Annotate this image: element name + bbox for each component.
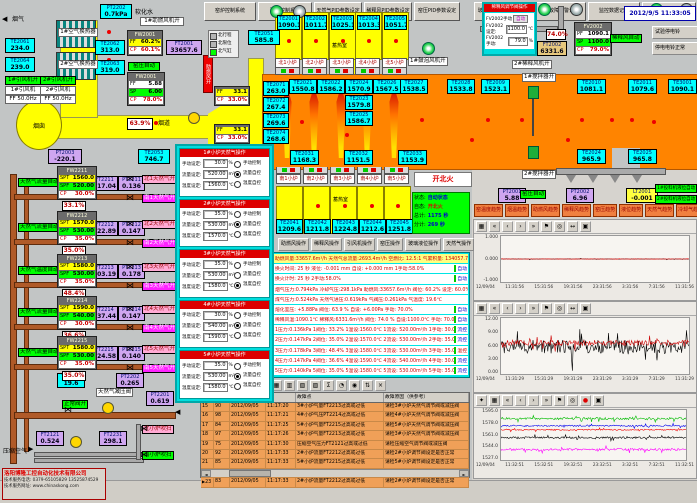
x-tick: 11:31:56 — [675, 284, 694, 289]
alarm-row[interactable]: 1975 2012/09/0511:17:30 压缩空气压力FT2121过高或过… — [201, 441, 469, 450]
x-tick: 12/09/04 — [476, 462, 495, 467]
instrument-readout: TE20421211.8 — [304, 219, 331, 234]
burner-status-leds — [276, 167, 301, 174]
operation-button[interactable]: 玻璃液位操作 — [405, 238, 441, 251]
scada-furnace-screen: 烟囱 ◀ 烟气 ← 软化水 烟道 1#空气换热器 2#空气换热器 1#引风机开 … — [0, 0, 697, 503]
unit-label: ℃ — [528, 27, 533, 32]
panel-row: FF60.2% — [129, 39, 161, 46]
panel-row: SP1100.0 — [576, 39, 610, 46]
flag-icon[interactable]: ⚑ — [541, 303, 552, 314]
instrument-readout: TE20231579.8 — [345, 95, 373, 110]
chart-toolbar: ▦«‹›»⚑◎↔▣ — [474, 302, 696, 316]
heat-exchanger-1-label: 1#空气换热器 — [58, 28, 98, 37]
trend-panel-temperature: ✦▦«‹›»⚑◎●▣ 1595.01578.01561.01544.01527.… — [473, 393, 697, 479]
indicator-dot-icon — [566, 138, 570, 142]
burner-status-leds — [329, 68, 354, 75]
radio-icon — [234, 312, 241, 319]
company-info-box: 洛阳博隆工控自动化技术有限公司 技术服务电话: 0379-65105829 13… — [2, 468, 106, 500]
valve-percent: 33.1% — [62, 201, 86, 211]
monitor-row: 助燃风量:33657.6m³/h 天然气总流量:2693.4m³/h 空燃比: … — [274, 254, 468, 263]
stirrer-1-on-label: 1#搅拌器开 — [522, 73, 556, 82]
radio-icon — [234, 272, 241, 279]
next-icon[interactable]: › — [528, 395, 539, 406]
south-gas-valve-label: 南2天然气开 — [142, 239, 177, 248]
instrument-readout: PT2003-220.1 — [48, 149, 82, 164]
flow-set-label: 流量设定: — [182, 172, 202, 178]
instrument-readout: TE20041013.3 — [357, 15, 380, 30]
radio-temp-auto[interactable]: 温度自控 — [234, 230, 268, 240]
panel-row: FF33.1 — [216, 89, 248, 96]
furnace-gas-panel: 5#小炉天然气操作 手动设定:35.0% 流量设定:530.00m³/h 温度设… — [179, 350, 270, 399]
datetime-display: 2012/9/5 11:33:05 — [624, 6, 696, 21]
alarm-row[interactable]: 2383 2012/09/0511:17:33 2#小炉流量FT2212过高或过… — [201, 478, 469, 487]
fv2002-manual-button[interactable]: FV2002手动 — [486, 16, 512, 22]
x-tick: 15:31:29 — [534, 376, 553, 381]
grid-icon[interactable]: ▦ — [489, 395, 500, 406]
aux-fan-panel-2: FF33.1CP33.0% — [214, 124, 250, 144]
trend-panel-pressure: ▦«‹›»⚑◎↔▣ 12.009.006.003.000.00 12/09/04… — [473, 301, 697, 393]
north-furnace-tab[interactable]: 北2小炉 — [302, 58, 327, 75]
furnace-gas-panel: 1#小炉天然气操作 手动设定:30.0% 流量设定:520.00m³/h 温度设… — [179, 148, 270, 197]
valve-icon: ⋈ — [126, 282, 134, 290]
x-tick: 3:31:29 — [622, 376, 638, 381]
unit-label: % — [229, 313, 233, 318]
manual-set-input[interactable]: 30.0 — [203, 311, 228, 320]
company-name: 洛阳博隆工控自动化技术有限公司 — [4, 470, 104, 478]
last-icon[interactable]: » — [528, 303, 539, 314]
monitor-row: 1压力:0.136kPa 1阀位: 33.2% 1温设:1560.0℃ 1流设:… — [274, 325, 468, 334]
south-furnace-tab[interactable]: 南4小炉 — [357, 167, 382, 184]
x-tick: 12/09/04 — [476, 284, 495, 289]
grid-icon[interactable]: ▦ — [476, 303, 487, 314]
radio-flow-auto[interactable]: 流量自控 — [234, 270, 268, 280]
temp-set-input[interactable]: 1570.0 — [203, 232, 228, 241]
instrument-readout: TE20051051.7 — [384, 15, 407, 30]
instrument-readout: TE20331153.9 — [398, 150, 427, 165]
chart-toolbar: ✦▦«‹›»⚑◎●▣ — [474, 394, 696, 408]
radio-manual-control[interactable]: 手动控制 — [234, 361, 268, 371]
instrument-readout: TE20441212.6 — [359, 219, 386, 234]
trend-button[interactable]: 液位趋势 — [619, 204, 643, 217]
gas-control-loop: 天然气流量自动 FW2211 SPT1560.0 SPF520.00 CP30.… — [18, 168, 172, 210]
led-green-icon — [390, 168, 395, 172]
first-icon[interactable]: « — [502, 395, 513, 406]
feeder-funnel-icon — [610, 175, 620, 183]
radio-temp-auto[interactable]: 温度自控 — [234, 381, 268, 391]
save-icon[interactable]: ▣ — [580, 303, 591, 314]
led-red-icon — [371, 168, 376, 172]
instrument-readout: TE2024965.9 — [577, 149, 606, 164]
instrument-readout: FT2231298.1 — [99, 431, 127, 446]
panel-title: FV2002 — [576, 24, 610, 30]
radio-icon — [234, 221, 241, 228]
radio-flow-auto[interactable]: 流量自控 — [234, 321, 268, 331]
mode-radio-group: 手动控制 流量自控 温度自控 — [234, 311, 268, 341]
dilution-auto-label: 稀释风自动 — [610, 34, 642, 43]
burner-status-leds — [357, 167, 382, 174]
instrument-readout: TE20281533.8 — [447, 79, 475, 94]
manual-set-label: 手动设定: — [182, 312, 202, 318]
stirrer-motor-icon — [528, 146, 539, 159]
flag-icon[interactable]: ⚑ — [541, 221, 552, 232]
flow-set-input[interactable]: 530.00 — [203, 271, 228, 280]
instrument-readout: TE2025965.8 — [628, 149, 657, 164]
changeover-status-panel: 状态:自动状态自态:开北火总计:1175 秒分计:269 秒 — [412, 192, 470, 234]
sum-icon[interactable]: Σ — [323, 380, 334, 391]
feeder-manifold-pipe — [556, 168, 666, 175]
operation-button[interactable]: 天然气操作 — [443, 238, 474, 251]
south-gas-valve-label: 南3天然气开 — [142, 282, 177, 291]
first-icon[interactable]: « — [489, 303, 500, 314]
temp-set-label: 温度设定: — [182, 334, 202, 340]
burner-status-leds — [275, 68, 300, 75]
last-icon[interactable]: » — [528, 221, 539, 232]
sort-icon[interactable]: ⇅ — [362, 380, 373, 391]
level-trend-plot[interactable] — [500, 235, 690, 283]
trend-button[interactable]: 冷却气趋势 — [676, 204, 697, 217]
instrument-readout: TE20251586.7 — [345, 111, 373, 126]
alarm-row[interactable]: 1897 2012/09/0511:17:26 3#小炉气量FT2213过高或过… — [201, 431, 469, 440]
fan-icon — [570, 3, 583, 16]
unit-label: ℃ — [229, 234, 234, 239]
radio-icon — [234, 211, 241, 218]
zoom-icon[interactable]: ◎ — [554, 221, 565, 232]
panel-title: 2#小炉天然气操作 — [180, 200, 269, 208]
north-gas-valve-label: 北4天然气开 — [142, 305, 177, 314]
instrument-readout: TE2072267.4 — [263, 97, 289, 112]
fv2002-auto-button[interactable]: 自动 — [513, 15, 528, 23]
mode-badge: 自动 — [454, 265, 468, 272]
indicator-dot-icon — [107, 30, 111, 34]
led-green-icon — [335, 69, 340, 73]
legend-state-icon — [210, 41, 217, 48]
scrollbar-thumb[interactable] — [229, 470, 271, 477]
gas-pid-panel: FW2211 SPT1560.0 SPF520.00 CP30.0% — [57, 166, 97, 200]
feeder-1-level-auto-label: 1#投料机液位自动 — [655, 184, 697, 193]
instrument-readout: TE2074268.6 — [263, 129, 289, 144]
burner-status-leds — [303, 167, 328, 174]
x-tick: 11:32:51 — [505, 462, 524, 467]
alarm-row[interactable]: 2185 2012/09/0511:17:33 5#小炉流量FT2215过高或过… — [201, 459, 469, 468]
panel-row: CP33.0% — [216, 97, 248, 104]
operation-button[interactable]: 助燃风操作 — [278, 238, 309, 251]
radio-icon — [234, 322, 241, 329]
panel-row: PF1090.1 — [576, 31, 610, 38]
dilution-valve-popup: 稀释风调节阀操作 FV2002手动自动 FV2002设定:1100.0℃ FV2… — [482, 2, 537, 56]
unit-label: % — [529, 39, 533, 44]
radio-icon — [234, 161, 241, 168]
radio-icon — [234, 171, 241, 178]
prev-icon[interactable]: ‹ — [515, 395, 526, 406]
flow-set-input[interactable]: 530.00 — [203, 372, 228, 381]
radio-temp-auto[interactable]: 温度自控 — [234, 331, 268, 341]
set-label: FV2002设定: — [486, 24, 505, 35]
instrument-readout: TE20311168.3 — [290, 150, 319, 165]
panel-title: 3#小炉天然气操作 — [180, 250, 269, 258]
grid3-icon[interactable]: ▧ — [297, 380, 308, 391]
burner-status-leds — [382, 68, 407, 75]
radio-manual-control[interactable]: 手动控制 — [234, 210, 268, 220]
kiln-pressure-auto-label-2: 窑压自动 — [520, 190, 546, 199]
panel-row: CP60.1% — [129, 47, 161, 54]
popup-title: 稀释风调节阀操作 — [484, 4, 535, 12]
south-furnace-tab[interactable]: 南2小炉 — [303, 167, 328, 184]
prev-icon[interactable]: ‹ — [502, 221, 513, 232]
grid-icon[interactable]: ▦ — [476, 221, 487, 232]
radio-temp-auto[interactable]: 温度自控 — [234, 179, 268, 189]
x-tick: 23:31:56 — [593, 284, 612, 289]
alarm-row[interactable]: 2092 2012/09/0511:17:33 2#小炉流量FT2212过高或过… — [201, 450, 469, 459]
burner-status-leds — [302, 68, 327, 75]
clock-icon[interactable]: ◔ — [336, 380, 347, 391]
alarm-row[interactable]: 1698 2012/09/0511:17:21 4#小炉气压PT2214过高或过… — [201, 412, 469, 421]
alarm-row[interactable]: 1784 2012/09/0511:17:25 5#小炉气量FT2215过高或过… — [201, 422, 469, 431]
operation-button[interactable]: 引风机操作 — [344, 238, 375, 251]
status-row: 状态:自动状态 — [414, 194, 468, 203]
manual-set-label: 手动设定: — [182, 211, 202, 217]
north-gas-valve-label: 北2天然气开 — [142, 220, 177, 229]
x-tick: 3:31:56 — [622, 284, 638, 289]
pressure-trend-plot[interactable] — [500, 317, 690, 375]
south-furnace-tab[interactable]: 南1小炉 — [276, 167, 301, 184]
unit-label: ℃ — [229, 335, 234, 340]
mode-badge: 流控 — [454, 357, 468, 364]
panel-title: 1#小炉天然气操作 — [180, 149, 269, 157]
radio-manual-control[interactable]: 手动控制 — [234, 260, 268, 270]
booster-air-duct-label: 助燃风开 — [203, 55, 213, 93]
next-icon[interactable]: › — [515, 303, 526, 314]
col-fault-reason: 故障原因（供参考） — [384, 393, 469, 402]
prev-icon[interactable]: ‹ — [502, 303, 513, 314]
alarm-table: 故障点 故障原因（供参考） 1590 2012/09/0511:17:20 3#… — [200, 392, 470, 478]
gas-control-loop: 天然气流量自动 FW2212 SPT1570.0 SPF530.00 CP35.… — [18, 213, 172, 255]
valve-icon: ⋈ — [126, 239, 134, 247]
instrument-readout: TE20271538.5 — [400, 79, 428, 94]
led-green-icon — [281, 69, 286, 73]
panel-title: FW2001 — [129, 74, 163, 80]
y-tick: 12.00 — [485, 317, 498, 322]
y-tick: 1527.0 — [482, 456, 498, 461]
north-gas-valve-label: 北5天然气开 — [142, 345, 177, 354]
trend-button[interactable]: 助燃风趋势 — [531, 204, 560, 217]
temp-set-input[interactable]: 1580.0 — [203, 282, 228, 291]
indicator-dot-icon — [610, 118, 614, 122]
soft-water-label: 软化水 — [135, 7, 153, 16]
trend-button[interactable]: 窑温度趋势 — [474, 204, 503, 217]
gas-auto-mode-label: 天然气流量自动 — [18, 348, 61, 357]
flow-set-input[interactable]: 520.00 — [203, 170, 228, 179]
south-furnace-tab[interactable]: 南3小炉 — [330, 167, 355, 184]
operation-button[interactable]: 稀释风操作 — [311, 238, 342, 251]
instrument-readout: TE20221586.2 — [317, 79, 345, 94]
manual-percent-input[interactable]: 79.0 — [508, 37, 528, 46]
manual-set-input[interactable]: 35.0 — [203, 210, 228, 219]
stirrer-motor-icon — [528, 86, 539, 99]
instrument-readout: TE2073269.6 — [263, 113, 289, 128]
instrument-readout: TE30011090.1 — [668, 79, 697, 94]
led-green-icon — [388, 69, 393, 73]
unit-label: % — [229, 363, 233, 368]
system-nav-button[interactable]: 窑炉控制系统 — [204, 2, 256, 21]
set-temp-input[interactable]: 1100.0 — [506, 25, 527, 34]
valve-icon: ⋈ — [64, 406, 72, 414]
flow-set-label: 流量设定: — [182, 374, 202, 380]
next-icon[interactable]: › — [515, 221, 526, 232]
span-icon[interactable]: ↔ — [567, 303, 578, 314]
radio-temp-auto[interactable]: 温度自控 — [234, 280, 268, 290]
y-tick: 1595.0 — [482, 409, 498, 414]
company-website[interactable]: 技术服务网址: www.chinaskong.com — [4, 484, 104, 490]
trend-button[interactable]: 稀释风趋势 — [562, 204, 591, 217]
pump-icon — [70, 436, 82, 448]
radio-flow-auto[interactable]: 流量自控 — [234, 220, 268, 230]
bell-status-button[interactable]: 停电电铃正常 — [652, 42, 697, 55]
instrument-readout: PT22010.619 — [146, 391, 174, 406]
manual-set-input[interactable]: 35.0 — [203, 260, 228, 269]
north-furnace-tab[interactable]: 北1小炉 — [275, 58, 300, 75]
south-furnace-tab[interactable]: 南5小炉 — [384, 167, 409, 184]
save-icon[interactable]: ▣ — [580, 221, 591, 232]
mode-badge: 自动 — [454, 316, 468, 323]
valve-icon: ⋈ — [126, 175, 134, 183]
process-monitor-panel: 助燃风量:33657.6m³/h 天然气总流量:2693.4m³/h 空燃比: … — [272, 252, 470, 378]
indicator-dot-icon — [420, 118, 424, 122]
indicator-dot-icon — [630, 118, 634, 122]
first-icon[interactable]: « — [489, 221, 500, 232]
gas-pid-panel: FW2215 SPT1580.0 SPF530.00 CP35.0% — [57, 336, 97, 370]
manual-set-input[interactable]: 35.0 — [203, 361, 228, 370]
x-tick: 23:32:51 — [593, 462, 612, 467]
close-icon[interactable]: × — [375, 380, 386, 391]
north-gas-valve-label: 北3天然气开 — [142, 263, 177, 272]
instrument-readout: TE20261567.5 — [373, 79, 401, 94]
x-tick: 19:31:29 — [564, 376, 583, 381]
flag-icon[interactable]: ⚑ — [554, 395, 565, 406]
booster-fan-1-on-label: 1#助燃风机开 — [140, 17, 184, 26]
mode-radio-group: 手动控制 流量自控 温度自控 — [234, 210, 268, 240]
x-tick: 11:31:29 — [675, 376, 694, 381]
system-nav-button[interactable]: 窑压PID参数设定 — [414, 2, 460, 21]
fire-north-button[interactable]: 开北火 — [414, 172, 472, 187]
north-gas-valve-label: 北1天然气开 — [142, 175, 177, 184]
radio-flow-auto[interactable]: 流量自控 — [234, 169, 268, 179]
zoom-icon[interactable]: ◎ — [554, 303, 565, 314]
led-green-icon — [363, 168, 368, 172]
radio-icon — [234, 231, 241, 238]
trend-button[interactable]: 窑压趋势 — [593, 204, 617, 217]
flow-set-label: 流量设定: — [182, 323, 202, 329]
gas-auto-mode-label: 天然气温度自动 — [18, 266, 61, 275]
gas-pid-panel: FW2214 SPT1590.0 SPF540.00 CP30.0% — [57, 296, 97, 330]
indicator-dot-icon — [394, 39, 398, 43]
temp-set-label: 温度设定: — [182, 183, 202, 189]
instrument-readout: TE2062313.0 — [95, 40, 125, 55]
trend-button[interactable]: 烟温趋势 — [505, 204, 529, 217]
instrument-readout: PT20026.96 — [566, 188, 594, 203]
bell-test-button[interactable]: 试验停电铃 — [652, 26, 697, 39]
valve-icon: ⋈ — [126, 324, 134, 332]
x-tick: 11:31:56 — [505, 284, 524, 289]
radio-icon — [234, 332, 241, 339]
monitor-row: 烟气压力:0.794kPa 冷却气压:298.1kPa 助燃风:33657.6m… — [274, 285, 468, 294]
gas-control-loop: 天然气温度自动 FW2213 SPT1580.0 SPF530.00 CP35.… — [18, 256, 172, 298]
temp-set-input[interactable]: 1580.0 — [203, 383, 228, 392]
gas-control-loop: 天然气流量自动 FW2215 SPT1580.0 SPF530.00 CP35.… — [18, 338, 172, 380]
gas-trunk-pipe — [10, 174, 17, 464]
manual-set-label: 手动设定: — [182, 161, 202, 167]
trend-panel-level: ▦«‹›»⚑◎↔▣ 1.0000.000-1.000 12/09/0411:31… — [473, 219, 697, 301]
valve-icon: ⋈ — [126, 220, 134, 228]
operation-button[interactable]: 窑压操作 — [377, 238, 403, 251]
chart-toolbar: ▦«‹›»⚑◎↔▣ — [474, 220, 696, 234]
x-tick: 23:31:29 — [593, 376, 612, 381]
dilution-valve-percent: 74.0% — [546, 29, 566, 40]
grid2-icon[interactable]: ▥ — [284, 380, 295, 391]
radio-manual-control[interactable]: 手动控制 — [234, 159, 268, 169]
save-icon[interactable]: ▣ — [593, 395, 604, 406]
flow-set-label: 流量设定: — [182, 222, 202, 228]
radio-manual-control[interactable]: 手动控制 — [234, 311, 268, 321]
north-furnace-tab[interactable]: 北3小炉 — [329, 58, 354, 75]
alarm-row[interactable]: 1590 2012/09/0511:17:20 3#小炉气量FT2213过高或过… — [201, 403, 469, 412]
y-tick: 6.00 — [488, 344, 498, 349]
key-icon[interactable]: ✦ — [476, 395, 487, 406]
span-icon[interactable]: ↔ — [567, 221, 578, 232]
trend-button[interactable]: 天然气趋势 — [645, 204, 674, 217]
temp-set-input[interactable]: 1560.0 — [203, 181, 228, 190]
lock-icon[interactable]: ◉ — [349, 380, 360, 391]
zoom-icon[interactable]: ◎ — [567, 395, 578, 406]
y-tick: 0.00 — [488, 370, 498, 375]
north-furnace-tab[interactable]: 北5小炉 — [382, 58, 407, 75]
x-tick: 7:31:29 — [649, 376, 665, 381]
manual-set-input[interactable]: 30.0 — [203, 159, 228, 168]
x-tick: 12/09/04 — [476, 376, 495, 381]
gas-pressure-valve-label: 天然气减压阀 — [96, 388, 133, 397]
flue-gas-arrow-icon: ◀ — [2, 16, 7, 23]
aux-fan-panel-1: FF33.1CP33.0% — [214, 86, 250, 106]
indicator-dot-icon — [370, 204, 374, 208]
led-red-icon — [398, 168, 403, 172]
y-tick: -1.000 — [483, 278, 498, 283]
temperature-trend-plot[interactable] — [500, 409, 687, 461]
temp-set-input[interactable]: 1590.0 — [203, 333, 228, 342]
instrument-readout: FT200133657.6 — [166, 40, 202, 55]
valve-icon: ⋈ — [140, 451, 148, 459]
manual-set-label: 手动设定: — [182, 262, 202, 268]
valve-icon: ⋈ — [126, 305, 134, 313]
monitor-row: 换火计时: 25 秒 2手动:58.0%自动 — [274, 274, 468, 283]
unit-label: ℃ — [229, 183, 234, 188]
indicator-dot-icon — [314, 39, 318, 43]
flue-damper-percent: 63.9% — [127, 118, 153, 130]
radio-flow-auto[interactable]: 流量自控 — [234, 371, 268, 381]
flow-set-input[interactable]: 540.00 — [203, 322, 228, 331]
north-furnace-tab[interactable]: 北4小炉 — [355, 58, 380, 75]
x-tick: 3:32:51 — [622, 462, 638, 467]
radio-icon — [234, 383, 241, 390]
flow-set-input[interactable]: 530.00 — [203, 221, 228, 230]
last-icon[interactable]: » — [541, 395, 552, 406]
id-fan-1-label: 1#引风机 — [5, 86, 41, 95]
panel-title: 5#小炉天然气操作 — [180, 351, 269, 359]
horizontal-scrollbar[interactable]: ◄► — [201, 469, 469, 477]
stop-icon[interactable]: ● — [580, 395, 591, 406]
grid4-icon[interactable]: ▨ — [310, 380, 321, 391]
furnace-gas-panel: 3#小炉天然气操作 手动设定:35.0% 流量设定:530.00m³/h 温度设… — [179, 249, 270, 298]
id-fan-1-freq: FF 50.0Hz — [5, 95, 41, 104]
monitor-row: 5压力:0.140kPa 5阀位: 35.0% 5温设:1580.0℃ 5流设:… — [274, 366, 468, 375]
